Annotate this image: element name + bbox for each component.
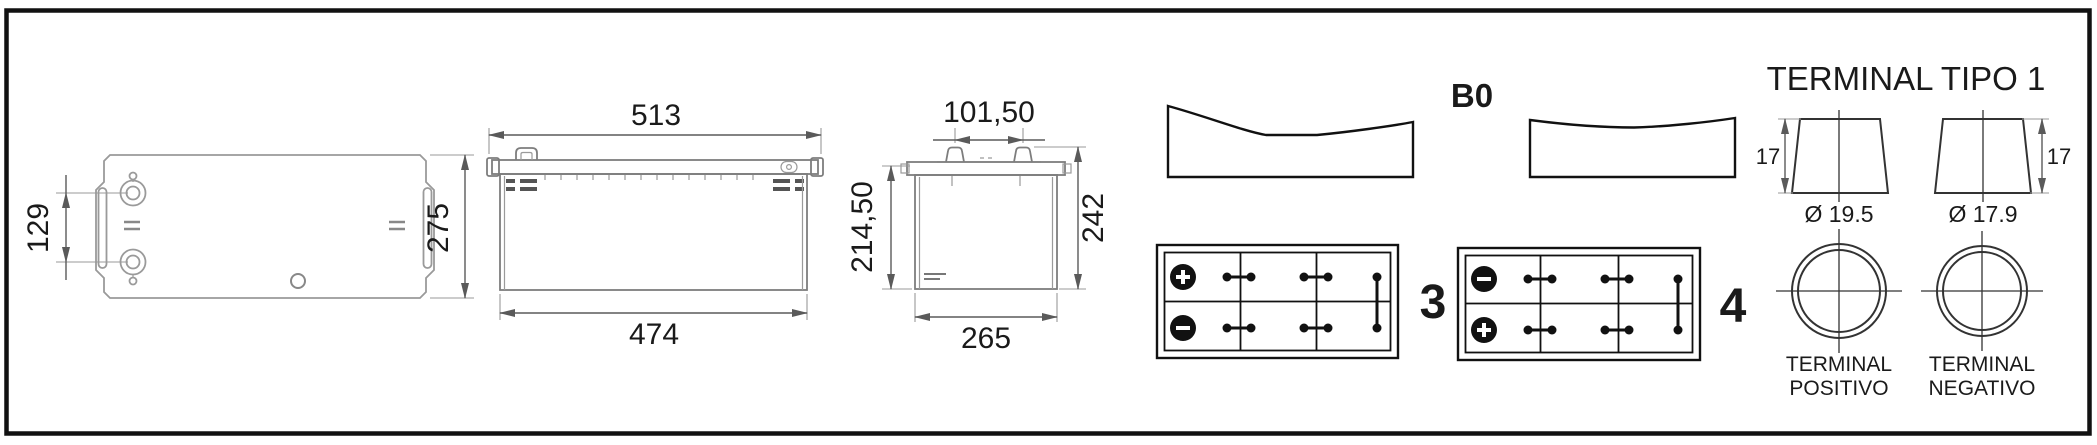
dim-terminal-spacing-top: 129 [22,203,55,253]
handle-left [99,188,107,268]
dim-terminal-spacing-end: 101,50 [943,96,1035,129]
terminal-positive-label-2: POSITIVO [1789,377,1888,400]
battery-technical-drawing: 129 275 513 [0,0,2097,445]
dim-terminal-height-positive: 17 [1756,144,1780,169]
terminal-type-section: TERMINAL TIPO 1 17 Ø 19.5 17 Ø 17.9 TERM… [1756,60,2071,400]
end-view-dimensions: 101,50 214,50 242 265 [846,96,1110,355]
dim-terminal-height-negative: 17 [2047,144,2071,169]
dim-box-height: 214,50 [846,181,879,273]
plus-terminal-icon [1170,264,1196,290]
embossed-mark [924,274,946,279]
drawing-canvas: 129 275 513 [0,0,2097,445]
top-view-dimensions: 129 275 [22,155,474,298]
dim-overall-length: 513 [631,99,681,132]
terminal-negative-profile: 17 Ø 17.9 [1935,110,2071,227]
battery-top-view [96,155,434,298]
lid-handle-tab [516,148,537,160]
mould-mark-left [124,222,140,229]
dim-total-height: 242 [1077,193,1110,243]
vent-plug-icon [291,274,305,288]
plus-terminal-icon [1471,317,1497,343]
terminal-negative-label-1: TERMINAL [1929,353,2035,376]
lid-label-dashes-right [773,179,804,191]
lid-plug-detail [781,162,797,173]
holddown-profile-b0: B0 [1168,77,1735,177]
layout-4-label: 4 [1720,280,1747,333]
polarity-layout-3: 3 [1157,245,1446,358]
mould-mark-right [389,222,405,229]
minus-terminal-icon [1170,315,1196,341]
holddown-profile-left [1168,106,1413,177]
minus-terminal-icon [1471,266,1497,292]
terminal-positive-diameter: Ø 19.5 [1804,201,1873,227]
terminal-positive-top: TERMINAL POSITIVO [1776,229,1902,400]
dim-overall-depth: 265 [961,322,1011,355]
cell-connectors [1223,273,1382,333]
end-view-terminal-right [1014,148,1032,163]
dim-overall-width: 275 [422,203,455,253]
cell-connectors [1524,275,1683,335]
terminal-negative-diameter: Ø 17.9 [1948,201,2017,227]
end-view-terminal-left [946,148,964,163]
lid-label-dashes-left [506,179,537,191]
terminal-negative-top: TERMINAL NEGATIVO [1921,231,2043,400]
terminal-type-title: TERMINAL TIPO 1 [1767,60,2046,97]
terminal-positive-profile: 17 Ø 19.5 [1756,110,1888,227]
holddown-profile-right [1530,118,1735,177]
polarity-layout-4: 4 [1458,248,1747,360]
dim-base-length: 474 [629,318,679,351]
terminal-post-bottom-icon [121,250,146,285]
terminal-post-top-icon [121,173,146,206]
holddown-label: B0 [1451,77,1493,114]
front-view-dimensions: 513 474 [489,99,821,351]
terminal-negative-label-2: NEGATIVO [1929,377,2036,400]
battery-end-view [901,148,1071,290]
terminal-positive-label-1: TERMINAL [1786,353,1892,376]
battery-front-view [487,148,823,290]
layout-3-label: 3 [1420,276,1447,329]
